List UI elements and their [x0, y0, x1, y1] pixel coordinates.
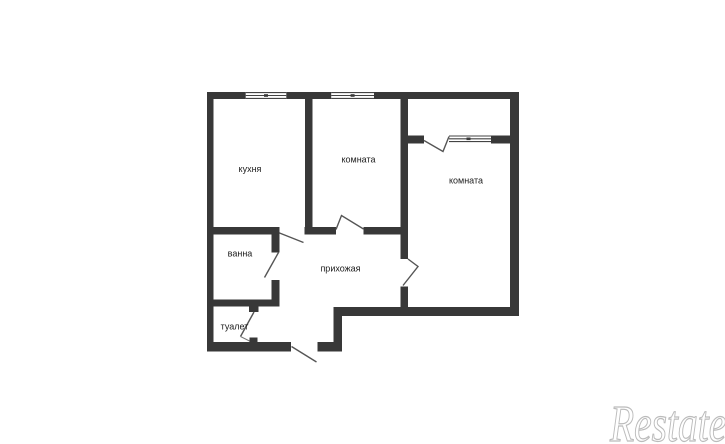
svg-text:туалет: туалет — [221, 322, 249, 332]
svg-text:прихожая: прихожая — [320, 264, 360, 274]
svg-text:комната: комната — [341, 155, 375, 165]
svg-text:ванна: ванна — [228, 249, 253, 259]
svg-text:кухня: кухня — [239, 164, 262, 174]
svg-text:Restate: Restate — [609, 396, 725, 444]
svg-text:комната: комната — [449, 176, 483, 186]
